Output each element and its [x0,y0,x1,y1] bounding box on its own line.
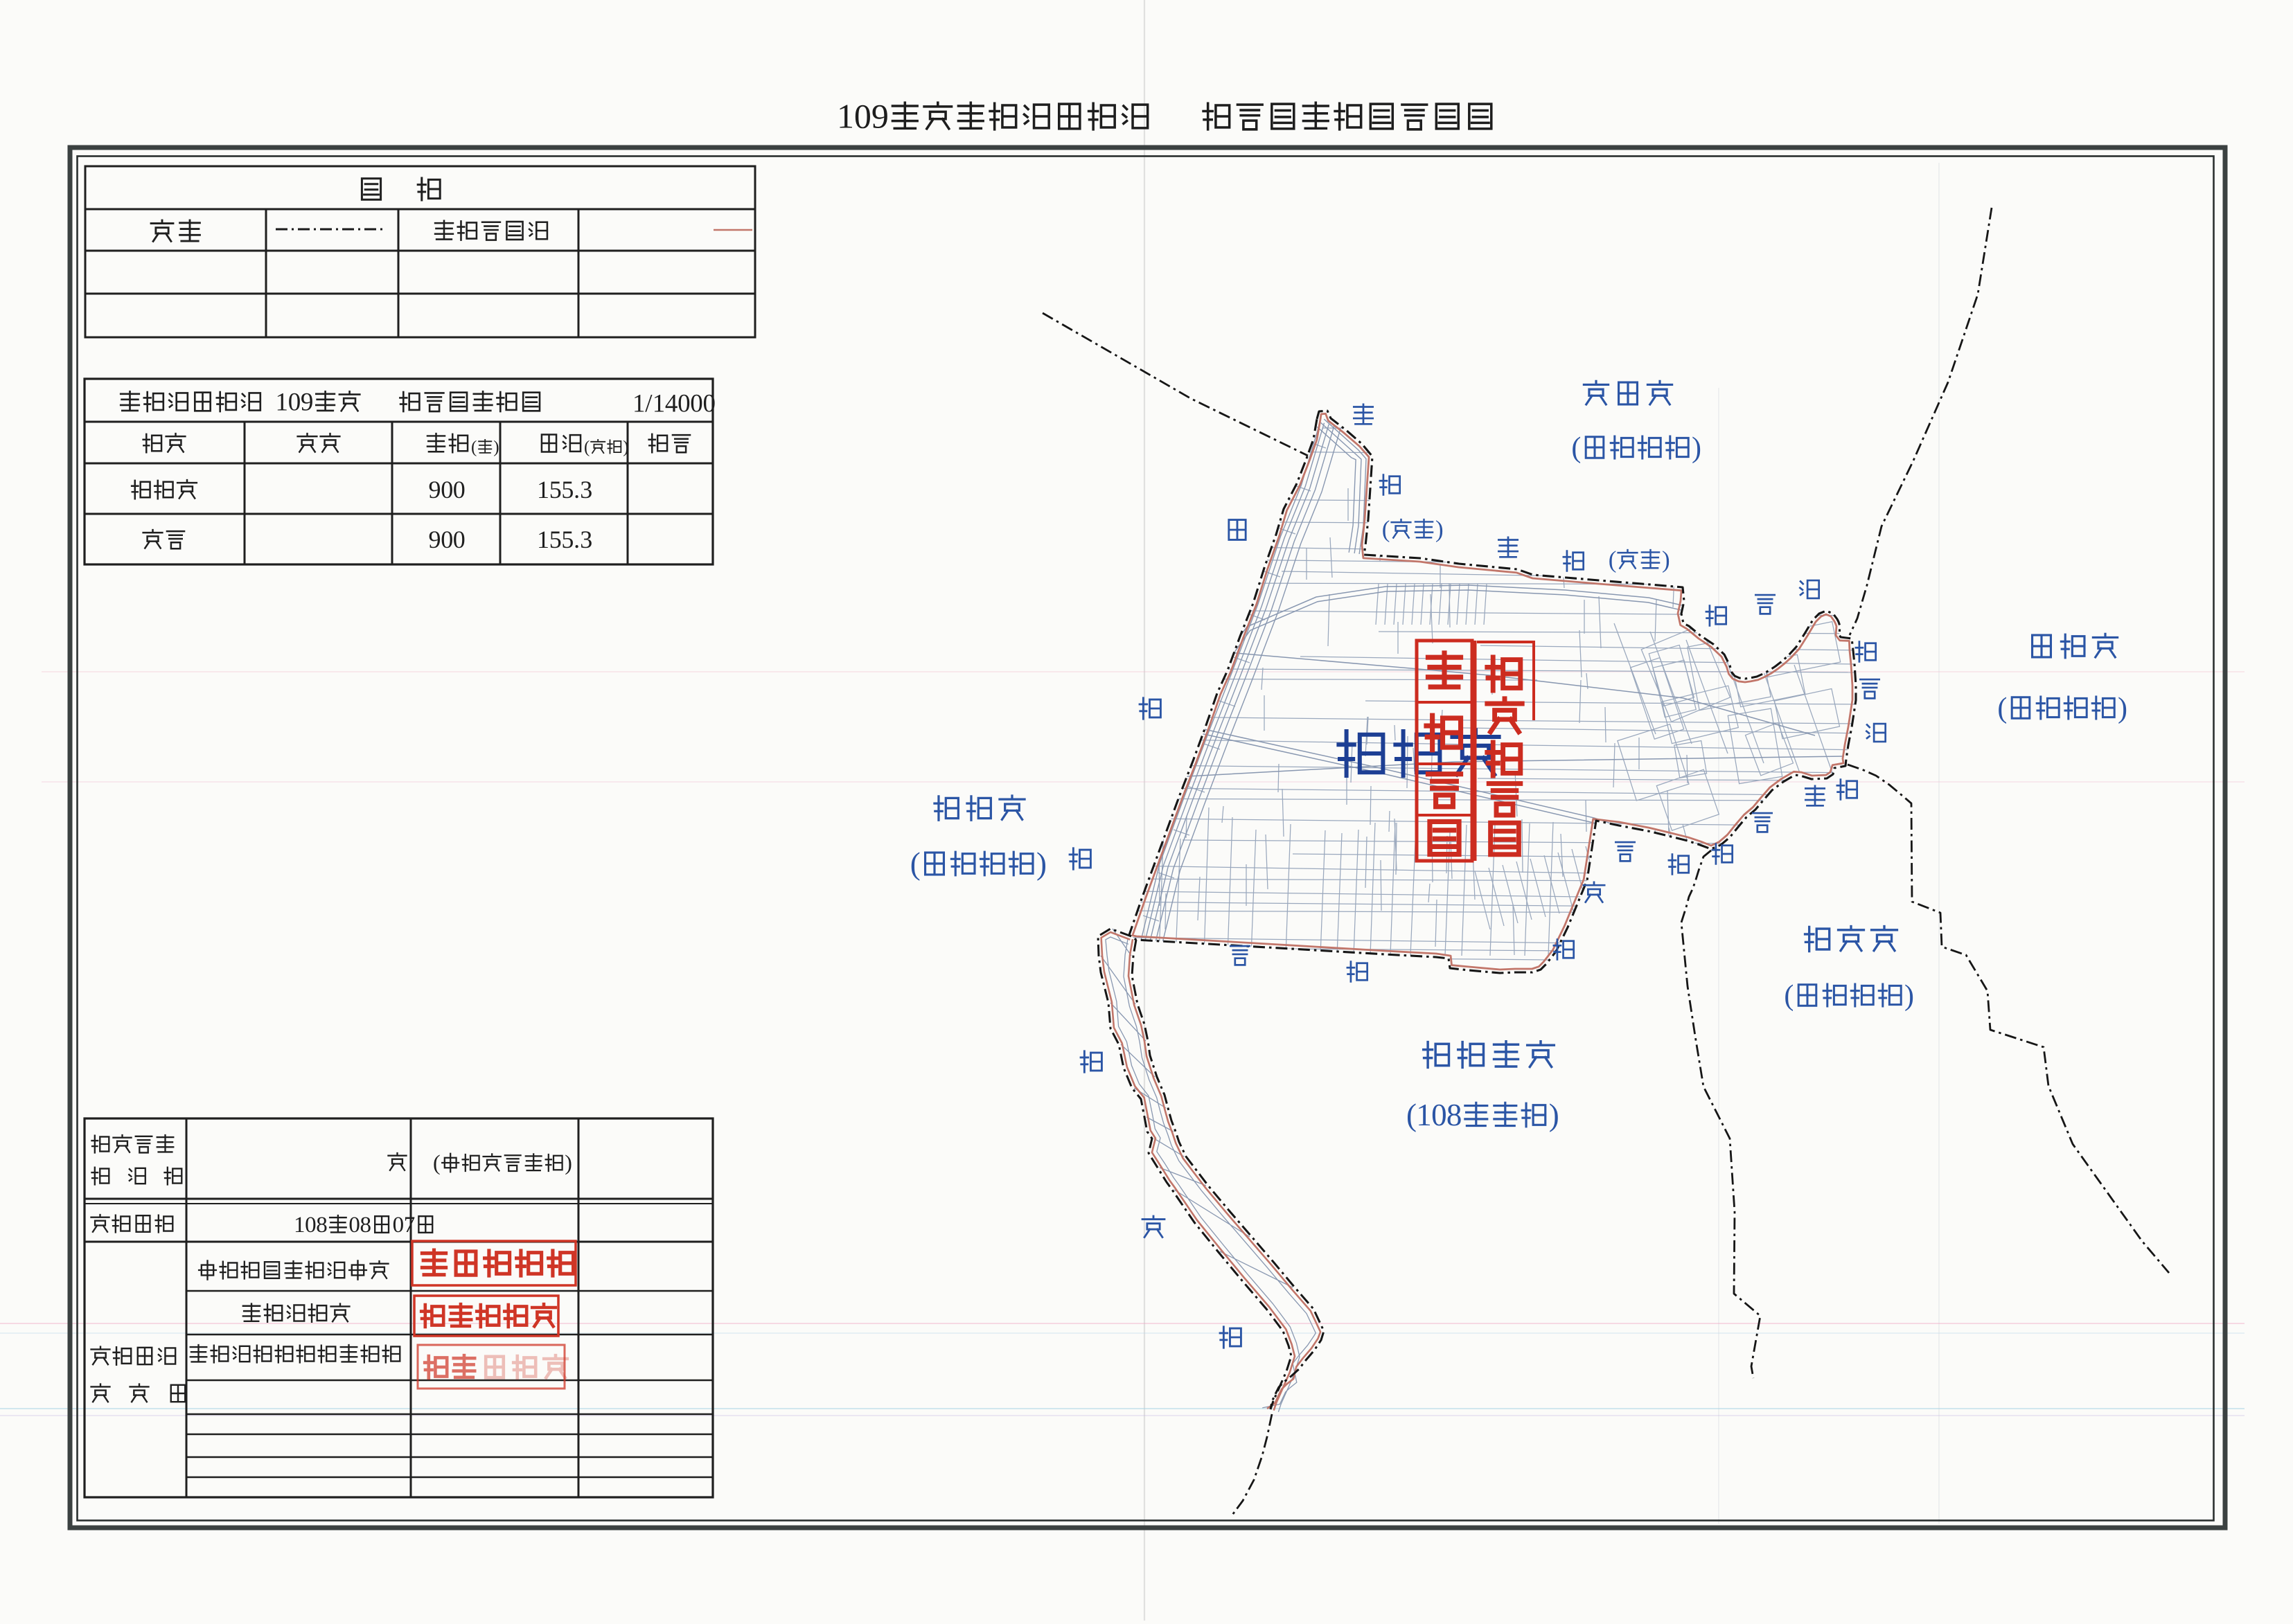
svg-text:0: 0 [690,389,703,418]
svg-text:9: 9 [301,388,314,416]
svg-text:3: 3 [580,476,592,503]
svg-text:7: 7 [404,1213,416,1238]
svg-text:): ) [1904,980,1914,1012]
svg-text:5: 5 [549,476,562,503]
svg-text:1: 1 [653,389,666,418]
svg-text:/: / [645,389,653,418]
svg-text:(: ( [471,438,477,457]
svg-text:): ) [1662,546,1670,573]
svg-text:1: 1 [632,389,646,418]
svg-text:3: 3 [580,526,592,553]
svg-text:0: 0 [441,476,453,503]
svg-text:9: 9 [429,526,441,553]
svg-text:): ) [1692,432,1701,464]
svg-text:0: 0 [453,526,466,553]
svg-text:): ) [493,438,499,457]
svg-text:0: 0 [288,388,301,416]
svg-text:(: ( [910,846,921,881]
svg-text:1: 1 [1416,1098,1432,1132]
svg-text:): ) [1036,846,1047,881]
svg-text:1: 1 [276,388,289,416]
svg-text:(: ( [1571,432,1581,464]
svg-text:1: 1 [537,476,549,503]
svg-text:): ) [623,438,628,457]
svg-text:9: 9 [429,476,441,503]
svg-text:(: ( [1784,980,1794,1012]
svg-text:.: . [574,476,580,503]
svg-text:5: 5 [549,526,562,553]
svg-text:5: 5 [561,476,574,503]
svg-text:0: 0 [348,1213,360,1238]
svg-text:.: . [574,526,580,553]
svg-text:0: 0 [703,389,716,418]
svg-text:1: 1 [837,97,854,136]
svg-text:(: ( [1997,693,2007,724]
svg-text:1: 1 [294,1213,306,1238]
svg-text:8: 8 [360,1213,372,1238]
svg-text:(: ( [1382,516,1390,543]
svg-text:1: 1 [537,526,549,553]
svg-text:0: 0 [453,476,466,503]
svg-text:8: 8 [316,1213,328,1238]
svg-text:(: ( [584,438,590,457]
svg-text:4: 4 [665,389,678,418]
svg-text:0: 0 [305,1213,317,1238]
svg-text:0: 0 [1431,1098,1447,1132]
svg-text:0: 0 [393,1213,405,1238]
svg-text:(: ( [433,1150,441,1175]
svg-text:): ) [2118,693,2127,724]
svg-text:0: 0 [678,389,691,418]
svg-text:8: 8 [1446,1098,1462,1132]
svg-text:0: 0 [854,97,871,136]
svg-text:9: 9 [871,97,889,136]
svg-text:0: 0 [441,526,453,553]
svg-text:5: 5 [561,526,574,553]
svg-text:): ) [565,1150,572,1175]
svg-text:(: ( [1609,546,1617,573]
svg-text:(: ( [1406,1098,1417,1132]
svg-text:): ) [1435,516,1444,543]
svg-text:): ) [1549,1098,1559,1132]
